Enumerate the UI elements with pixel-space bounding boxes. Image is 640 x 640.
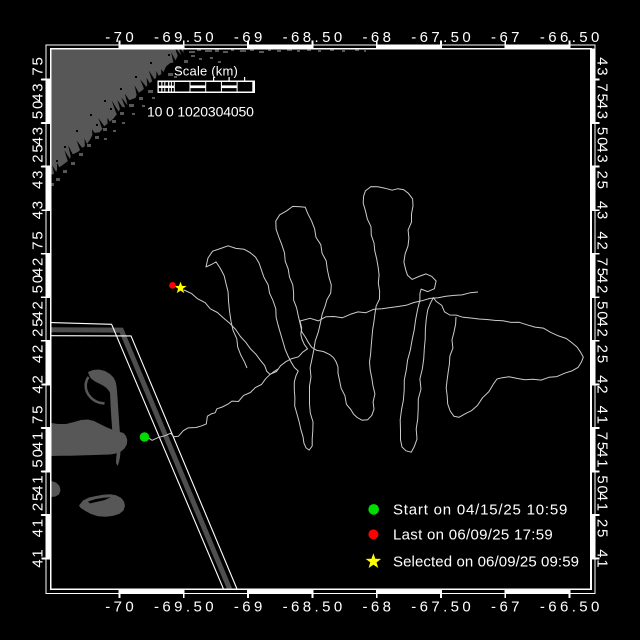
svg-text:Selected on 06/09/25 09:59: Selected on 06/09/25 09:59: [393, 554, 579, 571]
svg-text:43.25: 43.25: [30, 142, 47, 189]
svg-text:43.25: 43.25: [594, 144, 611, 191]
svg-text:41.75: 41.75: [594, 406, 611, 453]
svg-text:42.25: 42.25: [30, 317, 47, 364]
svg-text:-67: -67: [491, 599, 523, 616]
svg-text:-67: -67: [491, 29, 523, 46]
svg-text:41: 41: [30, 548, 47, 568]
svg-text:43.50: 43.50: [594, 101, 611, 148]
svg-text:43.50: 43.50: [30, 99, 47, 146]
svg-text:-68.50: -68.50: [283, 599, 346, 616]
svg-text:-68: -68: [362, 599, 394, 616]
svg-text:41.50: 41.50: [30, 447, 47, 494]
svg-text:41: 41: [594, 549, 611, 569]
svg-text:42.50: 42.50: [30, 273, 47, 320]
svg-text:-68.50: -68.50: [283, 29, 346, 46]
svg-text:42.75: 42.75: [594, 231, 611, 278]
svg-text:41.75: 41.75: [30, 404, 47, 451]
svg-text:10 0 1020304050: 10 0 1020304050: [147, 104, 254, 120]
svg-text:Start on 04/15/25 10:59: Start on 04/15/25 10:59: [393, 502, 568, 519]
svg-text:43.75: 43.75: [30, 55, 47, 102]
svg-text:42.25: 42.25: [594, 318, 611, 365]
svg-text:41.50: 41.50: [594, 449, 611, 496]
svg-text:-69.50: -69.50: [154, 599, 217, 616]
svg-text:Last on 06/09/25 17:59: Last on 06/09/25 17:59: [393, 527, 553, 544]
svg-text:43: 43: [30, 199, 47, 219]
svg-text:-69: -69: [234, 29, 266, 46]
svg-text:42.50: 42.50: [594, 275, 611, 322]
svg-text:42: 42: [30, 373, 47, 393]
svg-text:-67.50: -67.50: [411, 599, 474, 616]
svg-text:-66.50: -66.50: [540, 599, 603, 616]
svg-text:41.25: 41.25: [594, 493, 611, 540]
svg-text:-69: -69: [234, 599, 266, 616]
svg-text:-70: -70: [105, 599, 137, 616]
svg-text:43: 43: [594, 201, 611, 221]
svg-text:Scale (km): Scale (km): [174, 64, 238, 79]
svg-text:43.75: 43.75: [594, 57, 611, 104]
svg-text:-67.50: -67.50: [411, 29, 474, 46]
svg-text:-68: -68: [362, 29, 394, 46]
svg-text:42: 42: [594, 375, 611, 395]
svg-text:41.25: 41.25: [30, 491, 47, 538]
svg-text:-69.50: -69.50: [154, 29, 217, 46]
svg-text:-70: -70: [105, 29, 137, 46]
svg-text:42.75: 42.75: [30, 230, 47, 277]
svg-text:-66.50: -66.50: [540, 29, 603, 46]
